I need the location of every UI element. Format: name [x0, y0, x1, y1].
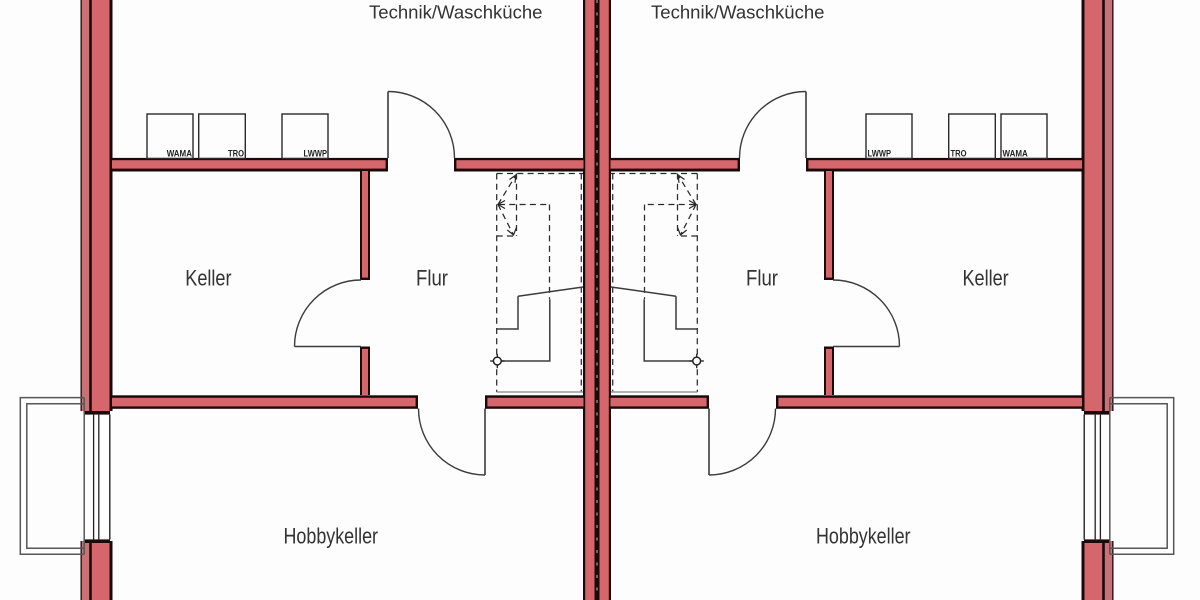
svg-text:LWWP: LWWP [304, 149, 328, 159]
svg-text:WAMA: WAMA [167, 149, 193, 159]
svg-text:Technik/Waschküche: Technik/Waschküche [651, 2, 825, 23]
svg-text:Hobbykeller: Hobbykeller [284, 524, 379, 549]
svg-text:Keller: Keller [185, 266, 231, 291]
svg-text:Hobbykeller: Hobbykeller [816, 524, 911, 549]
svg-text:Keller: Keller [963, 266, 1009, 291]
svg-text:Flur: Flur [416, 266, 448, 291]
svg-text:LWWP: LWWP [868, 149, 892, 159]
svg-text:WAMA: WAMA [1003, 149, 1029, 159]
svg-text:Flur: Flur [746, 266, 778, 291]
svg-text:Technik/Waschküche: Technik/Waschküche [369, 2, 543, 23]
svg-text:TRO: TRO [951, 149, 967, 159]
svg-text:TRO: TRO [228, 149, 244, 159]
